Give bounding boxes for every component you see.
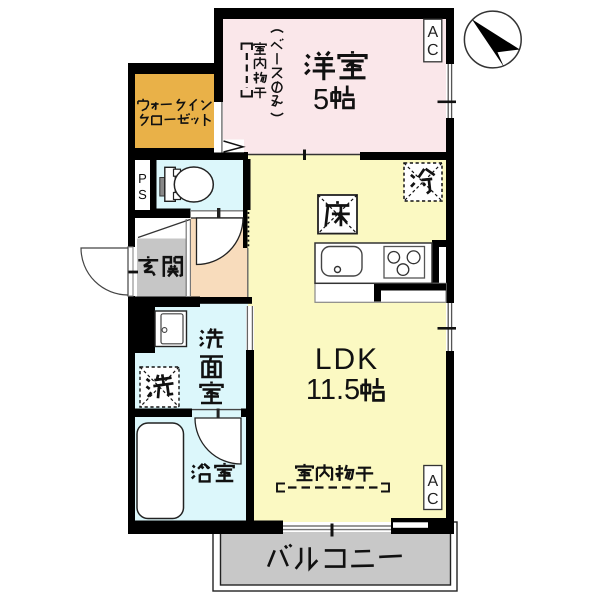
svg-text:A: A bbox=[427, 24, 438, 41]
svg-text:LDK: LDK bbox=[315, 343, 379, 376]
svg-text:S: S bbox=[138, 187, 147, 202]
svg-text:P: P bbox=[138, 171, 147, 186]
svg-text:C: C bbox=[427, 42, 439, 59]
svg-text:A: A bbox=[427, 473, 438, 490]
svg-text:5: 5 bbox=[313, 84, 329, 116]
svg-text:11.5: 11.5 bbox=[306, 374, 360, 406]
svg-text:C: C bbox=[427, 491, 439, 508]
